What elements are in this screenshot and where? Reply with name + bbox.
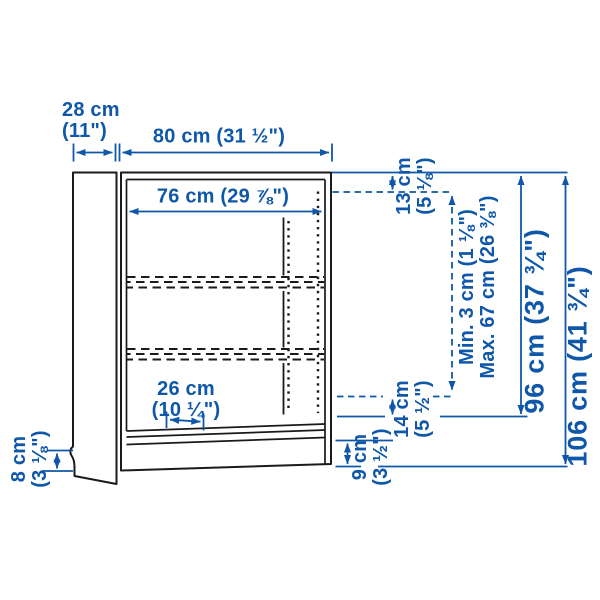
adjustable-shelf-upper xyxy=(127,277,324,288)
bookcase-drawing xyxy=(70,173,331,485)
foot-height-inch: (3 ⅛") xyxy=(30,430,51,487)
foot-height-dimension-label: 8 cm (3 ⅛") xyxy=(9,430,51,487)
top-offset-cm: 13 cm xyxy=(394,157,415,215)
side-panel-outline xyxy=(70,173,116,485)
depth-dimension-inch: (11") xyxy=(62,121,120,142)
inner-height-dimension-label: 96 cm (37 ¾") xyxy=(522,228,549,413)
adjustable-shelf-lower xyxy=(127,349,324,360)
shelf-depth-inch: (10 ¼") xyxy=(152,400,221,421)
bottom-shelf-back-edge xyxy=(127,424,326,431)
bottom-offset-cm: 14 cm xyxy=(392,380,413,438)
inner-width-dimension-label: 76 cm (29 ⅞") xyxy=(157,187,289,208)
plinth-height-cm: 9 cm xyxy=(350,428,371,485)
shelf-adjust-dimension-label: Min. 3 cm (1 ⅛") Max. 67 cm (26 ⅜") xyxy=(457,195,499,378)
diagram-canvas xyxy=(0,0,600,600)
width-dimension-label: 80 cm (31 ½") xyxy=(153,127,285,148)
bookcase-dimension-diagram: 28 cm (11") 80 cm (31 ½") 76 cm (29 ⅞") … xyxy=(0,0,600,600)
shelf-adjust-min: Min. 3 cm (1 ⅛") xyxy=(457,195,478,378)
top-offset-inch: (5 ⅛") xyxy=(415,157,436,215)
plinth-height-dimension-label: 9 cm (3 ½") xyxy=(350,428,392,485)
depth-dimension-label: 28 cm (11") xyxy=(62,100,120,142)
front-frame-outline xyxy=(121,173,331,471)
shelf-depth-dimension-label: 26 cm (10 ¼") xyxy=(152,379,221,421)
bottom-offset-inch: (5 ½") xyxy=(413,380,434,438)
plinth-height-inch: (3 ½") xyxy=(371,428,392,485)
bottom-shelf-under-edge xyxy=(127,438,326,445)
bottom-shelf-front-edge xyxy=(127,430,326,437)
top-offset-dimension-label: 13 cm (5 ⅛") xyxy=(394,157,436,215)
shelf-depth-cm: 26 cm xyxy=(152,379,221,400)
bottom-offset-dimension-label: 14 cm (5 ½") xyxy=(392,380,434,438)
foot-height-cm: 8 cm xyxy=(9,430,30,487)
depth-dimension-cm: 28 cm xyxy=(62,100,120,121)
total-height-dimension-label: 106 cm (41 ¾") xyxy=(565,265,592,466)
shelf-adjust-max: Max. 67 cm (26 ⅜") xyxy=(478,195,499,378)
